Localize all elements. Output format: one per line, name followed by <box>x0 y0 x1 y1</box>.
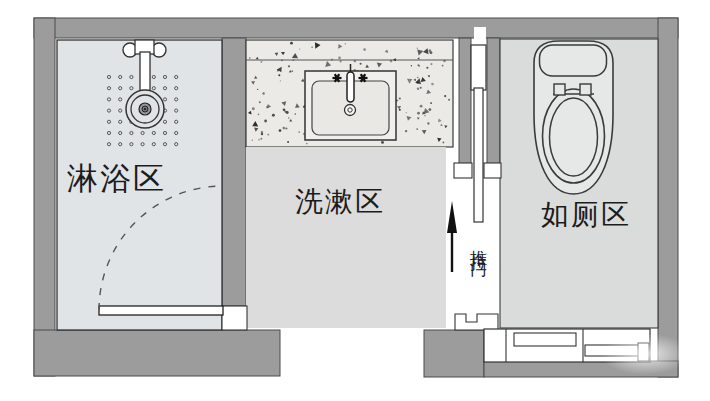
wall-bottom-left <box>34 330 280 376</box>
zone-label-toilet: 如厕区 <box>541 196 631 234</box>
sliding-door-receiver <box>455 314 498 330</box>
toilet-seat-outer <box>543 89 605 183</box>
sink-fixture <box>305 64 396 140</box>
wall-right <box>658 18 678 377</box>
pocket-cap-right <box>484 163 501 178</box>
shower-arm <box>140 52 150 92</box>
wall-door-pocket-right <box>487 38 500 164</box>
zone-label-shower: 淋浴区 <box>67 158 166 200</box>
cabinet-shelf-right <box>585 345 642 356</box>
wall-divider-shower-washing <box>222 38 246 306</box>
wall-top <box>34 18 678 38</box>
shower-head-center <box>144 108 146 110</box>
bathroom-floor-plan: 淋浴区 洗漱区 如厕区 推拉门 <box>0 0 710 401</box>
wall-bottom-stub <box>424 330 484 377</box>
toilet-hinge-right <box>580 84 591 95</box>
sliding-door-panel <box>474 88 483 222</box>
sliding-door-label: 推拉门 <box>467 236 490 251</box>
cabinet-end-panel <box>638 343 649 361</box>
sink-drain <box>345 105 356 116</box>
door-track-notch <box>474 27 486 39</box>
arrow-head <box>447 201 457 233</box>
doorway-gap <box>222 306 247 330</box>
pocket-cap-left <box>454 163 472 178</box>
faucet-spout <box>347 72 354 102</box>
arrow-up-icon <box>447 201 457 272</box>
zone-label-washing: 洗漱区 <box>295 183 385 221</box>
washing-zone-floor <box>246 147 446 328</box>
cabinet-shelf-left <box>514 333 576 346</box>
wall-door-pocket-left <box>459 38 471 164</box>
wall-bottom-right <box>484 361 678 377</box>
toilet-fixture <box>534 41 613 194</box>
wall-left <box>34 18 55 376</box>
toilet-hinge-left <box>554 84 565 95</box>
door-leaf <box>99 306 223 315</box>
sliding-door-track <box>471 45 486 90</box>
cabinet-icon <box>484 329 650 362</box>
